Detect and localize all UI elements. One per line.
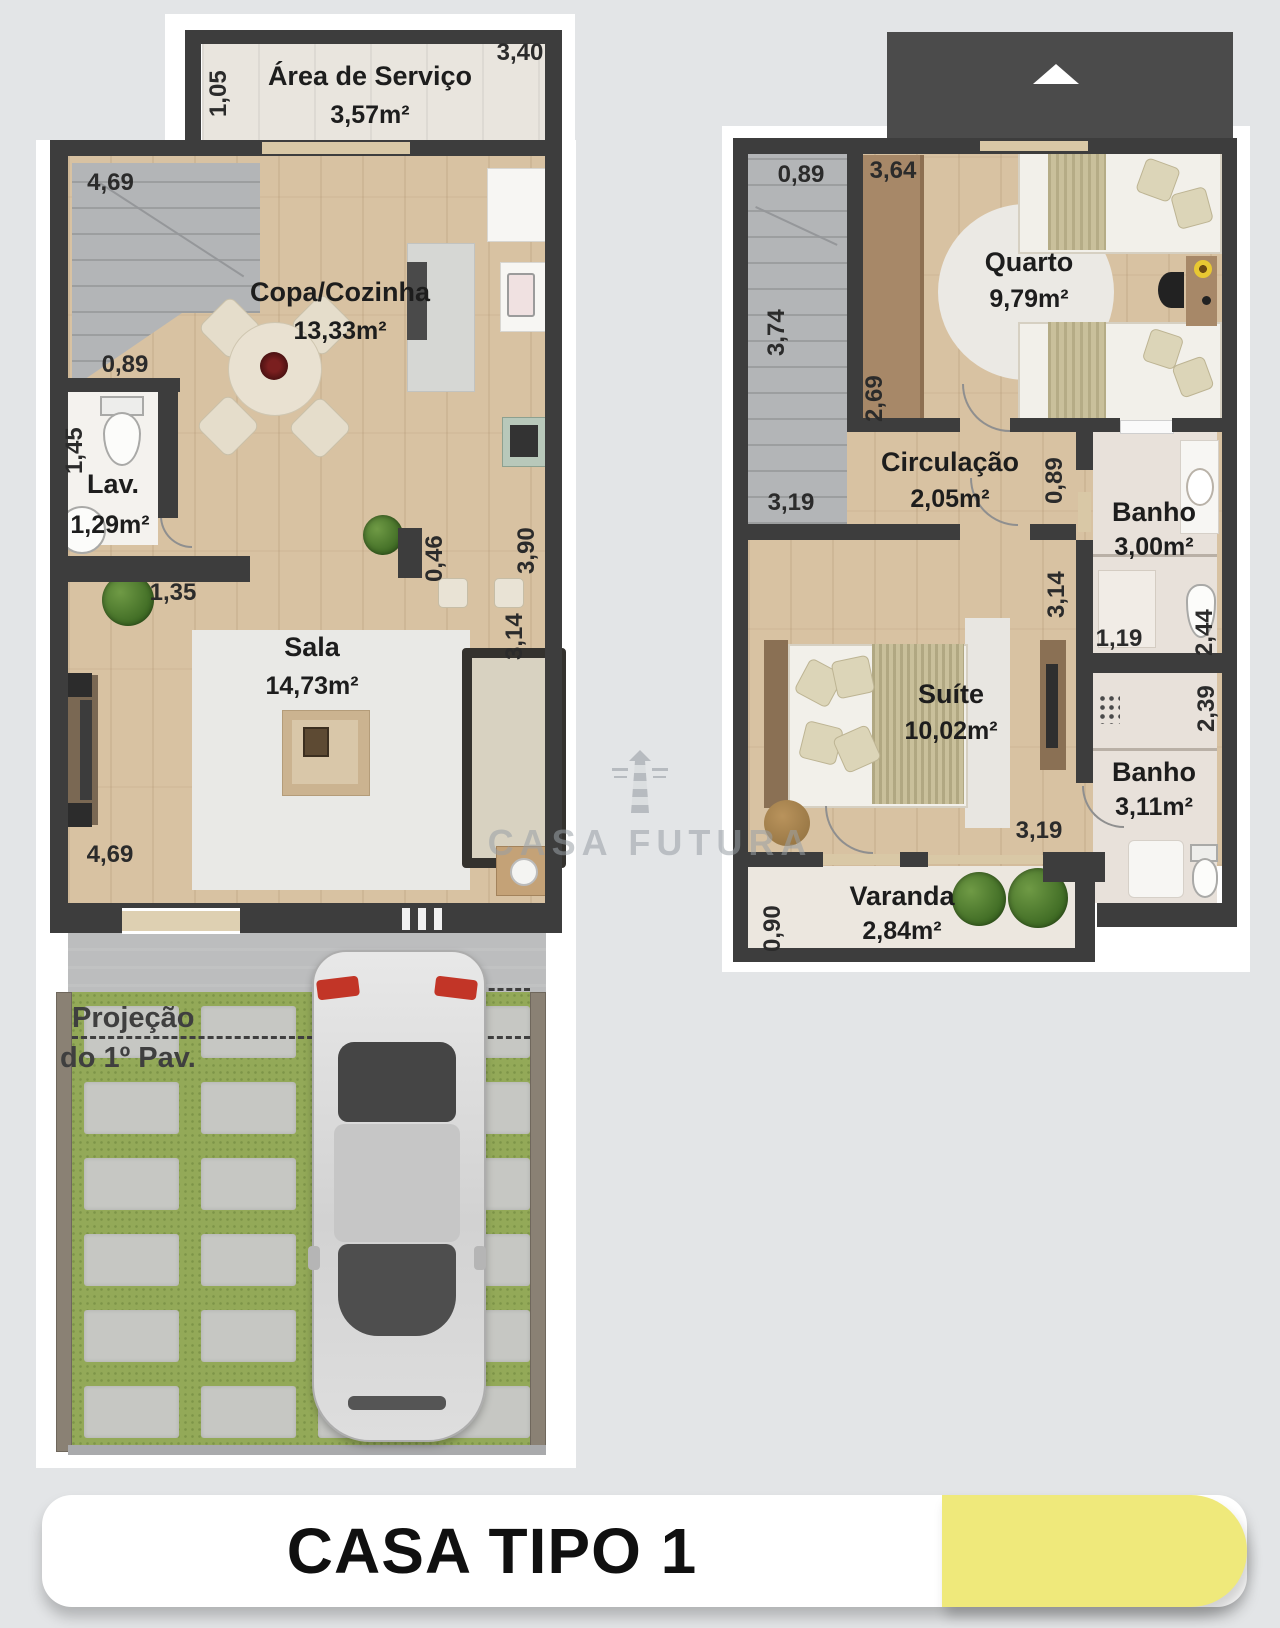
banner-accent xyxy=(942,1495,1247,1607)
paver-pad xyxy=(84,1234,179,1286)
paver-pad xyxy=(201,1234,296,1286)
paver-pad xyxy=(201,1082,296,1134)
dim-label: 4,69 xyxy=(66,842,154,867)
dim-label: 3,14 xyxy=(502,584,527,660)
room-label-copa: Copa/Cozinha xyxy=(215,278,465,306)
room-area-banho-superior: 3,00m² xyxy=(1096,534,1212,560)
room-area-quarto: 9,79m² xyxy=(966,286,1092,312)
dim-label: 2,39 xyxy=(1194,668,1219,732)
room-label-sala: Sala xyxy=(258,633,366,661)
room-area-banho-suite: 3,11m² xyxy=(1096,794,1212,820)
paver-pad xyxy=(201,1006,296,1058)
room-label-quarto: Quarto xyxy=(963,248,1095,276)
dim-label: 1,45 xyxy=(62,404,87,474)
wall xyxy=(185,30,201,148)
speaker xyxy=(68,673,92,697)
floor-plan-sheet: 1,05 Área de Serviço 3,57m² 3,40 4,69 Co… xyxy=(0,0,1280,1628)
tv-screen xyxy=(80,700,92,800)
dim-label: 0,89 xyxy=(768,162,834,187)
decor-dot xyxy=(1202,296,1211,305)
dim-label: 0,46 xyxy=(422,522,447,582)
north-arrow-icon xyxy=(1033,64,1079,84)
pillow xyxy=(830,654,875,699)
paver-pad xyxy=(201,1158,296,1210)
paver-pad xyxy=(84,1386,179,1438)
dim-label: 1,35 xyxy=(138,580,208,605)
tv-partition-wall xyxy=(398,528,422,578)
bath-window xyxy=(1120,420,1174,434)
desk-chair xyxy=(1158,272,1184,308)
dim-label: 4,69 xyxy=(68,170,153,195)
room-label-servico: Área de Serviço xyxy=(240,62,500,90)
table-centerpiece xyxy=(260,352,288,380)
dim-label: 2,69 xyxy=(862,352,887,422)
wall xyxy=(1076,673,1093,783)
north-header xyxy=(887,32,1233,138)
wall xyxy=(1030,524,1076,540)
garage-fence-right xyxy=(530,992,546,1452)
wall xyxy=(1172,418,1222,432)
speaker xyxy=(68,803,92,827)
car-top-view xyxy=(312,950,482,1438)
dim-label: 3,64 xyxy=(860,158,926,183)
wall xyxy=(1093,418,1120,432)
dim-label: 2,44 xyxy=(1192,592,1217,656)
lighthouse-icon xyxy=(612,750,668,816)
gate-mark xyxy=(402,908,410,930)
dim-label: 1,19 xyxy=(1086,626,1152,651)
paver-pad xyxy=(201,1386,296,1438)
car-grill xyxy=(348,1396,446,1410)
room-area-circulacao: 2,05m² xyxy=(890,486,1010,512)
bath-sink xyxy=(1128,840,1184,898)
dim-label: 3,19 xyxy=(1006,818,1072,843)
room-area-sala: 14,73m² xyxy=(224,673,400,699)
service-door-sill xyxy=(262,142,410,154)
room-label-banho-superior: Banho xyxy=(1098,498,1210,526)
dim-label: 0,90 xyxy=(760,884,785,952)
bar-stool xyxy=(438,578,468,608)
car-mirror xyxy=(474,1246,486,1270)
wall xyxy=(733,948,1095,962)
dim-label: 0,89 xyxy=(90,352,160,377)
paver-pad xyxy=(201,1310,296,1362)
projection-note-line2: do 1º Pav. xyxy=(60,1042,196,1075)
car-windshield xyxy=(338,1244,456,1336)
gate-mark xyxy=(434,908,442,930)
dim-label: 3,74 xyxy=(764,282,789,356)
toilet-suite-bowl xyxy=(1192,858,1218,898)
plant xyxy=(363,515,403,555)
bed-blanket xyxy=(1048,152,1106,250)
wall xyxy=(158,378,178,518)
room-area-servico: 3,57m² xyxy=(290,102,450,128)
room-label-banho-suite: Banho xyxy=(1098,758,1210,786)
suite-window-sill xyxy=(928,855,1043,864)
dim-label: 1,05 xyxy=(206,45,231,117)
room-label-lav: Lav. xyxy=(73,470,153,498)
garage-bottom-edge xyxy=(68,1445,546,1455)
room-area-suite: 10,02m² xyxy=(886,718,1016,744)
wall xyxy=(1076,418,1093,470)
quarto-window-sill xyxy=(980,141,1088,151)
sunflower-decor xyxy=(1194,260,1212,278)
living-window-sill xyxy=(122,908,240,934)
watermark-text: CASA FUTURA xyxy=(460,822,840,864)
wall xyxy=(900,852,928,867)
shower-dots xyxy=(1098,694,1120,724)
wall xyxy=(1097,903,1237,927)
room-area-copa: 13,33m² xyxy=(255,318,425,344)
paver-pad xyxy=(84,1082,179,1134)
dim-label: 3,14 xyxy=(1044,550,1069,618)
paver-pad xyxy=(84,1158,179,1210)
car-mirror xyxy=(308,1246,320,1270)
room-area-varanda: 2,84m² xyxy=(842,918,962,944)
kitchen-sink xyxy=(507,273,535,317)
shower-divider xyxy=(1093,748,1217,751)
bath-door-sill xyxy=(1078,492,1091,532)
stove-cooktop xyxy=(510,425,538,457)
suite-tv-screen xyxy=(1046,664,1058,748)
bed-blanket xyxy=(1048,322,1106,418)
dim-label: 3,19 xyxy=(758,490,824,515)
wall xyxy=(1222,138,1237,927)
wall xyxy=(1043,852,1105,882)
projection-note-line1: Projeção xyxy=(72,1002,195,1035)
room-label-suite: Suíte xyxy=(898,680,1004,708)
dim-label: 3,90 xyxy=(514,500,539,574)
suite-headboard xyxy=(764,640,788,808)
dim-label: 3,40 xyxy=(485,40,555,65)
wall xyxy=(545,30,562,933)
banner-title: CASA TIPO 1 xyxy=(42,1495,942,1607)
kitchen-counter-top xyxy=(487,168,547,242)
wall xyxy=(748,524,960,540)
wall xyxy=(1075,882,1095,962)
car-rear-window xyxy=(338,1042,456,1122)
coffee-table-tray xyxy=(303,727,329,757)
gate-mark xyxy=(418,908,426,930)
room-label-circulacao: Circulação xyxy=(868,448,1032,476)
car-roof xyxy=(334,1124,460,1242)
room-label-varanda: Varanda xyxy=(836,882,968,910)
room-area-lav: 1,29m² xyxy=(60,512,160,538)
paver-pad xyxy=(84,1310,179,1362)
dim-label: 0,89 xyxy=(1042,440,1067,504)
